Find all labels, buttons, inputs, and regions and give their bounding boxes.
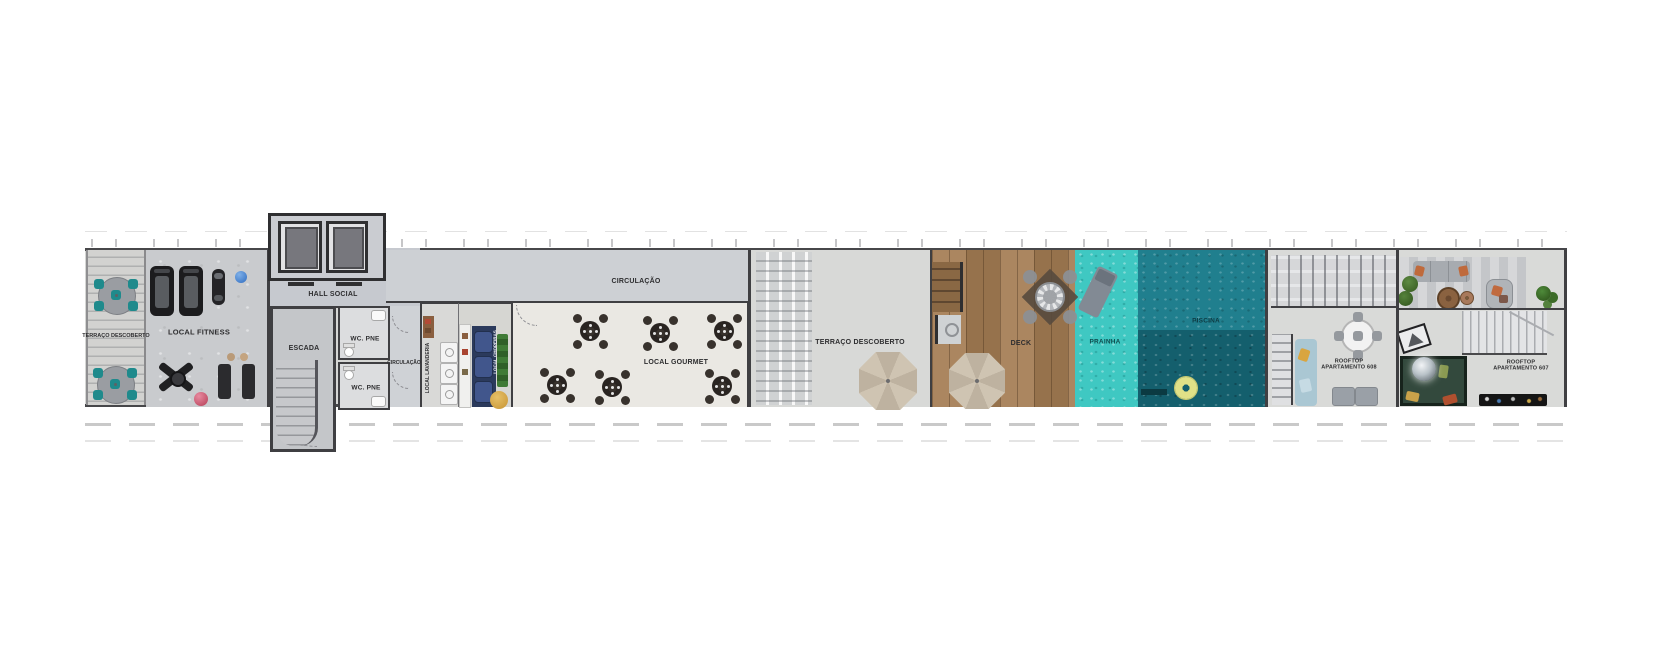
umbrella-icon	[859, 352, 917, 410]
room-label-rooftop-608: ROOFTOP APARTAMENTO 608	[1321, 359, 1377, 372]
dining-table-icon	[714, 321, 734, 341]
gym-ball-blue-icon	[235, 271, 247, 283]
umbrella-icon	[949, 353, 1005, 409]
elevator-1-icon	[278, 221, 322, 273]
elevator-door-sill	[288, 282, 314, 286]
room-label-terraco-esquerda: TERRAÇO DESCOBERTO	[82, 333, 149, 339]
sofa-icon	[1413, 261, 1470, 282]
room-label-prainha: PRAINHA	[1089, 338, 1120, 345]
rooftop-607-line2: APARTAMENTO 607	[1493, 366, 1549, 372]
plant-icon	[1398, 291, 1413, 306]
bar-counter-icon	[459, 324, 471, 408]
room-label-local-gourmet: LOCAL GOURMET	[644, 359, 708, 367]
plant-icon	[1536, 286, 1551, 301]
workout-mat-icon	[218, 364, 231, 399]
stairs-608-icon	[1272, 334, 1293, 405]
lounge-rug-608	[1295, 339, 1317, 406]
toilet-icon	[343, 366, 355, 380]
washing-machine-icon	[440, 342, 458, 363]
dining-table-icon	[580, 321, 600, 341]
glow-sphere-icon	[1412, 357, 1436, 381]
barstool-icon	[474, 356, 493, 378]
room-label-hall-social: HALL SOCIAL	[308, 291, 357, 299]
room-label-escada: ESCADA	[289, 345, 320, 353]
floorplan-canvas: TERRAÇO DESCOBERTO LOCAL FITNESS HALL SO…	[0, 0, 1657, 651]
circulation-corridor	[386, 250, 750, 303]
washing-machine-icon	[440, 363, 458, 384]
multi-gym-icon	[154, 355, 198, 399]
dining-table-icon	[547, 375, 567, 395]
room-label-rooftop-607: ROOFTOP APARTAMENTO 607	[1493, 360, 1549, 373]
dining-table-icon	[650, 323, 670, 343]
room-label-local-fitness: LOCAL FITNESS	[168, 329, 230, 338]
ottoman-icon	[1332, 387, 1355, 406]
pouf-icon	[490, 391, 508, 409]
sink-icon	[371, 396, 386, 407]
shower-pad-icon	[935, 315, 961, 344]
workout-mat-icon	[242, 364, 255, 399]
room-label-circulacao: CIRCULAÇÃO	[611, 278, 660, 286]
room-label-wc-pne-2: WC. PNE	[351, 384, 380, 391]
rooftop-608-table-icon	[1341, 319, 1375, 353]
deck-stairs-icon	[932, 262, 963, 312]
plan-right-wall	[1564, 250, 1567, 407]
washing-machine-icon	[440, 384, 458, 405]
dumbbell-icon	[227, 353, 235, 361]
toilet-icon	[343, 343, 355, 357]
room-label-deck: DECK	[1011, 340, 1032, 348]
terrace-table-icon	[97, 366, 135, 404]
bar-counter-607-icon	[1479, 394, 1547, 406]
wall-corridor-terrace	[748, 250, 751, 407]
treadmill-icon	[150, 266, 174, 316]
stairs-607-icon	[1462, 311, 1547, 355]
dining-table-icon	[602, 377, 622, 397]
ottoman-icon	[1355, 387, 1378, 406]
treadmill-icon	[179, 266, 203, 316]
piscina-area-lower	[1138, 330, 1268, 407]
room-label-terraco-central: TERRAÇO DESCOBERTO	[815, 339, 904, 347]
dumbbell-icon	[240, 353, 248, 361]
pool-float-icon	[1175, 377, 1197, 399]
pool-ledge	[1141, 389, 1167, 395]
deck-table-icon	[1035, 282, 1065, 312]
vertical-garden-icon	[497, 334, 508, 387]
wall-608-607	[1396, 250, 1399, 407]
elevator-door-sill	[336, 282, 362, 286]
room-label-piscina: PISCINA	[1192, 317, 1220, 324]
room-label-wc-pne-1: WC. PNE	[350, 335, 379, 342]
coffee-table-icon	[1460, 291, 1474, 305]
dining-table-icon	[712, 376, 732, 396]
terrace-table-icon	[98, 277, 136, 315]
plant-icon	[1402, 276, 1418, 292]
barstool-icon	[474, 331, 493, 353]
armchair-icon	[1486, 279, 1513, 309]
elevator-2-icon	[326, 221, 368, 273]
pool-right-wall	[1265, 250, 1268, 407]
gym-ball-red-icon	[194, 392, 208, 406]
room-label-circulacao-wc: CIRCULAÇÃO	[387, 361, 421, 367]
sink-icon	[371, 310, 386, 321]
exercise-bike-icon	[212, 269, 225, 305]
laundry-shelf-icon	[423, 316, 434, 338]
pergola-slats-608	[1271, 255, 1396, 308]
room-label-local-chopeiras: LOCAL CHOPEIRAS	[492, 330, 497, 373]
staircase-icon	[276, 360, 318, 446]
rooftop-608-line2: APARTAMENTO 608	[1321, 365, 1377, 371]
wall-607-lounge	[1399, 308, 1567, 310]
pergola-louvre-strip	[756, 252, 812, 405]
room-label-local-lavanderia: LOCAL LAVANDERIA	[426, 343, 432, 394]
coffee-table-icon	[1437, 287, 1460, 310]
